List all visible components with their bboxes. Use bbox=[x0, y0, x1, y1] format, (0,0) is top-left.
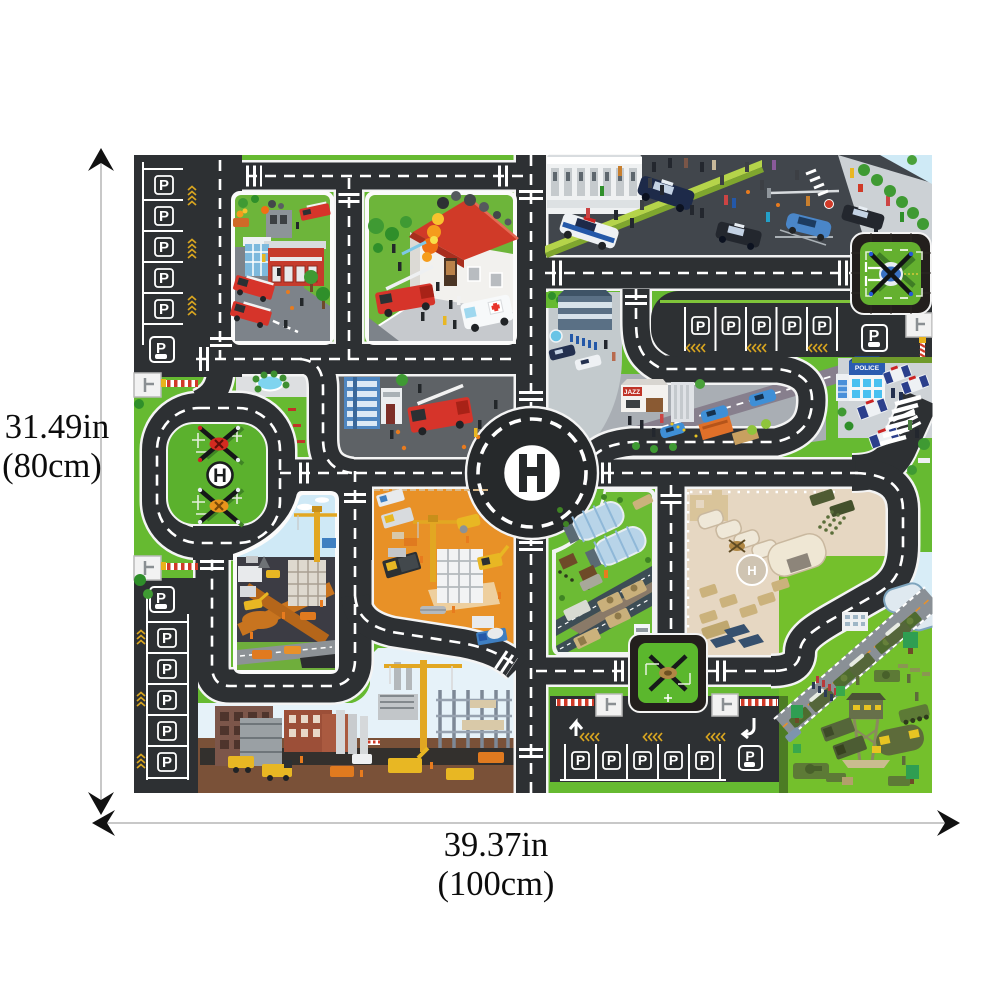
svg-text:P: P bbox=[745, 748, 754, 764]
svg-text:P: P bbox=[162, 630, 172, 647]
svg-text:H: H bbox=[213, 466, 227, 487]
svg-text:P: P bbox=[159, 301, 169, 318]
svg-text:P: P bbox=[159, 239, 169, 256]
svg-text:31.49in: 31.49in bbox=[5, 408, 109, 446]
svg-text:P: P bbox=[607, 752, 616, 768]
svg-text:P: P bbox=[159, 208, 169, 225]
svg-text:P: P bbox=[576, 752, 585, 768]
svg-text:P: P bbox=[159, 270, 169, 287]
svg-text:P: P bbox=[757, 318, 766, 334]
svg-text:P: P bbox=[726, 318, 735, 334]
svg-text:(100cm): (100cm) bbox=[438, 865, 555, 903]
svg-text:P: P bbox=[696, 318, 705, 334]
svg-text:P: P bbox=[817, 318, 826, 334]
svg-text:39.37in: 39.37in bbox=[444, 826, 548, 864]
svg-text:P: P bbox=[162, 661, 172, 678]
svg-text:P: P bbox=[162, 754, 172, 771]
svg-text:P: P bbox=[159, 177, 169, 194]
svg-text:P: P bbox=[787, 318, 796, 334]
svg-text:JAZZ: JAZZ bbox=[624, 389, 640, 396]
svg-text:P: P bbox=[638, 752, 647, 768]
svg-text:POLICE: POLICE bbox=[855, 365, 880, 372]
svg-text:P: P bbox=[162, 723, 172, 740]
svg-text:P: P bbox=[162, 692, 172, 709]
svg-text:P: P bbox=[700, 752, 709, 768]
svg-text:P: P bbox=[669, 752, 678, 768]
svg-text:(80cm): (80cm) bbox=[2, 447, 102, 485]
svg-text:H: H bbox=[747, 563, 756, 578]
